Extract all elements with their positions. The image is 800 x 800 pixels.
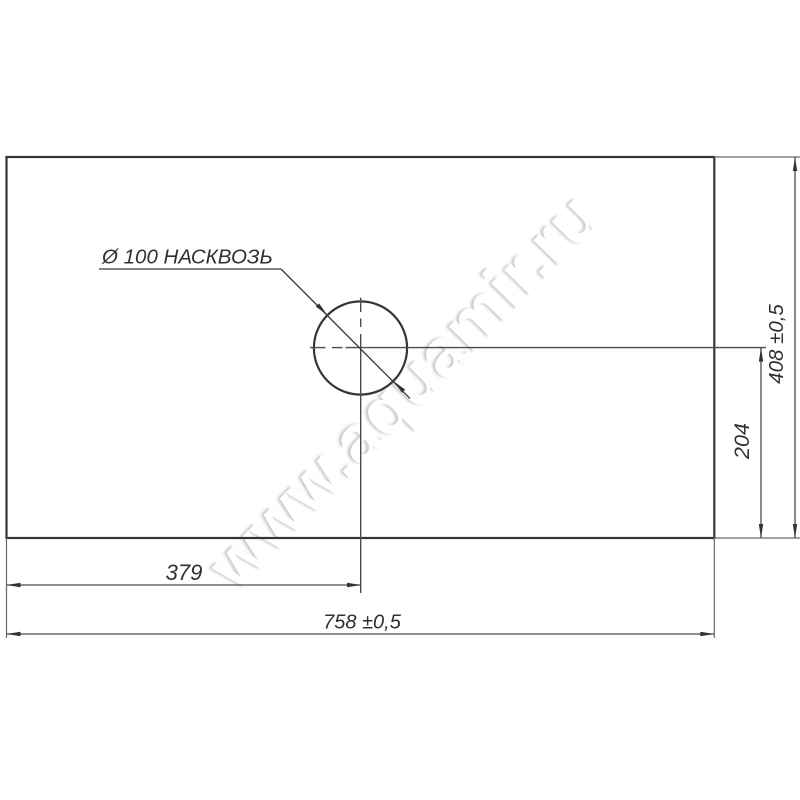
svg-text:204: 204: [730, 423, 754, 460]
svg-text:379: 379: [166, 560, 203, 585]
svg-text:758 ±0,5: 758 ±0,5: [323, 612, 402, 634]
svg-text:Ø 100 НАСКВОЗЬ: Ø 100 НАСКВОЗЬ: [101, 246, 273, 269]
svg-text:408 ±0,5: 408 ±0,5: [765, 304, 788, 384]
